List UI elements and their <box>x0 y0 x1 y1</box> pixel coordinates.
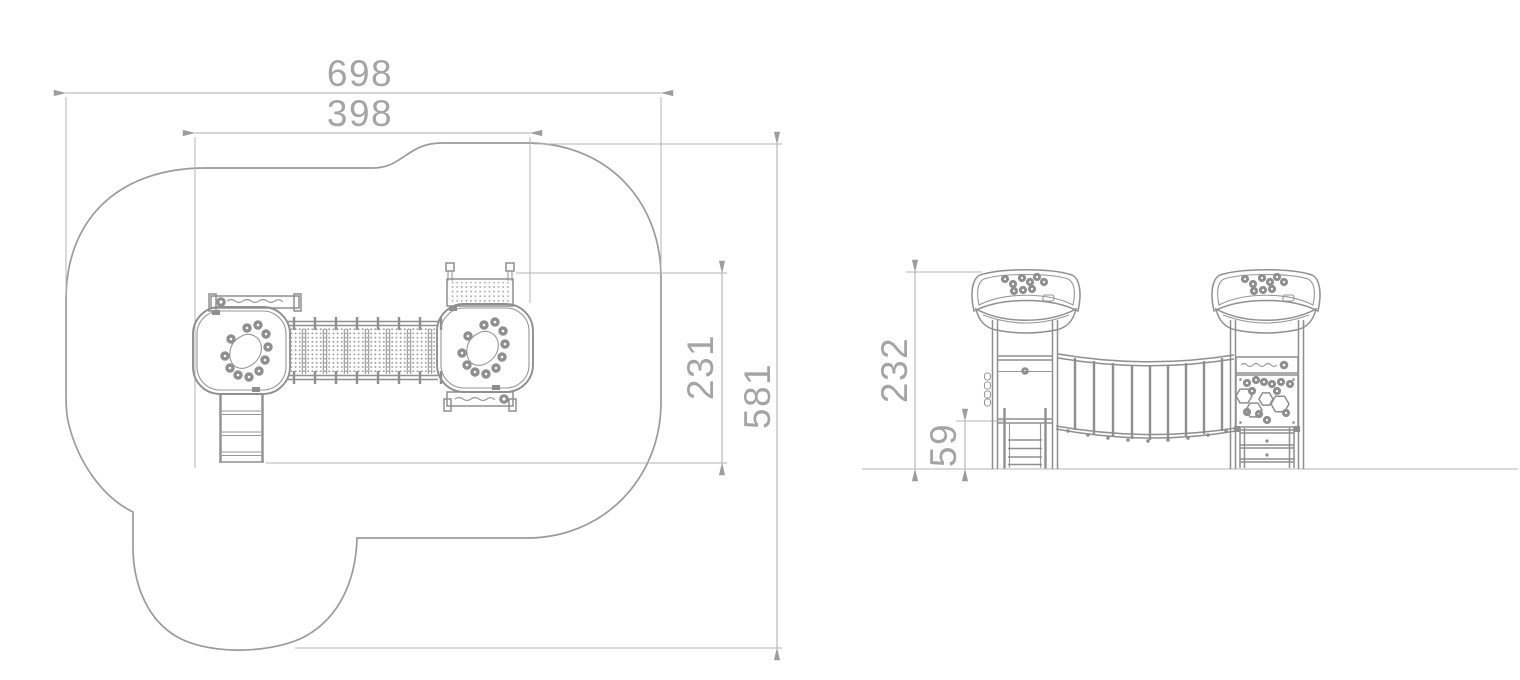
technical-drawing-page: 698 398 231 581 <box>0 0 1520 680</box>
climbing-hold-ring <box>459 319 508 377</box>
canopy-hold-cluster <box>1242 274 1286 293</box>
dimension-platform-height: 59 <box>923 421 1006 469</box>
climbing-net-plan <box>446 263 514 306</box>
clamp <box>1294 426 1300 432</box>
ladder-plan <box>219 394 264 463</box>
left-platform-plan <box>193 294 301 463</box>
canopy <box>972 270 1080 333</box>
dim-overall-depth-label: 581 <box>737 363 778 429</box>
rope-bridge-elevation <box>1056 354 1236 443</box>
dimension-inner-width: 398 <box>195 93 530 468</box>
dim-overall-width-label: 698 <box>327 53 393 94</box>
panel-round-holds <box>1244 377 1292 422</box>
climbing-panel-plan <box>209 294 301 311</box>
dim-inner-width-label: 398 <box>327 93 393 134</box>
right-platform-plan <box>437 263 533 411</box>
dim-total-height-label: 232 <box>874 337 915 403</box>
climbing-hold-ring <box>222 322 271 380</box>
dim-inner-depth-label: 231 <box>680 334 721 400</box>
canopy-hold-cluster <box>1002 274 1046 293</box>
post-holds <box>985 373 991 406</box>
bridge-slats <box>1075 358 1222 440</box>
safety-zone-outline <box>66 143 661 650</box>
clamp <box>449 306 457 311</box>
box-steps-elevation <box>1234 426 1300 468</box>
clamp <box>492 385 500 390</box>
playground-dimension-drawing: 698 398 231 581 <box>0 0 1520 680</box>
dim-platform-height-label: 59 <box>923 423 964 467</box>
clamp <box>252 387 260 392</box>
clamp <box>212 310 220 315</box>
climbing-panel-plan <box>444 392 516 411</box>
plan-view: 698 398 231 581 <box>66 53 782 650</box>
ladder-elevation <box>1005 408 1046 469</box>
left-tower-elevation <box>972 270 1080 469</box>
elevation-view: 232 59 <box>862 270 1518 469</box>
net-bridge-plan <box>288 317 441 384</box>
climbing-panel-elevation <box>1236 357 1298 427</box>
clamp <box>1234 426 1240 432</box>
right-tower-elevation <box>1212 270 1320 469</box>
